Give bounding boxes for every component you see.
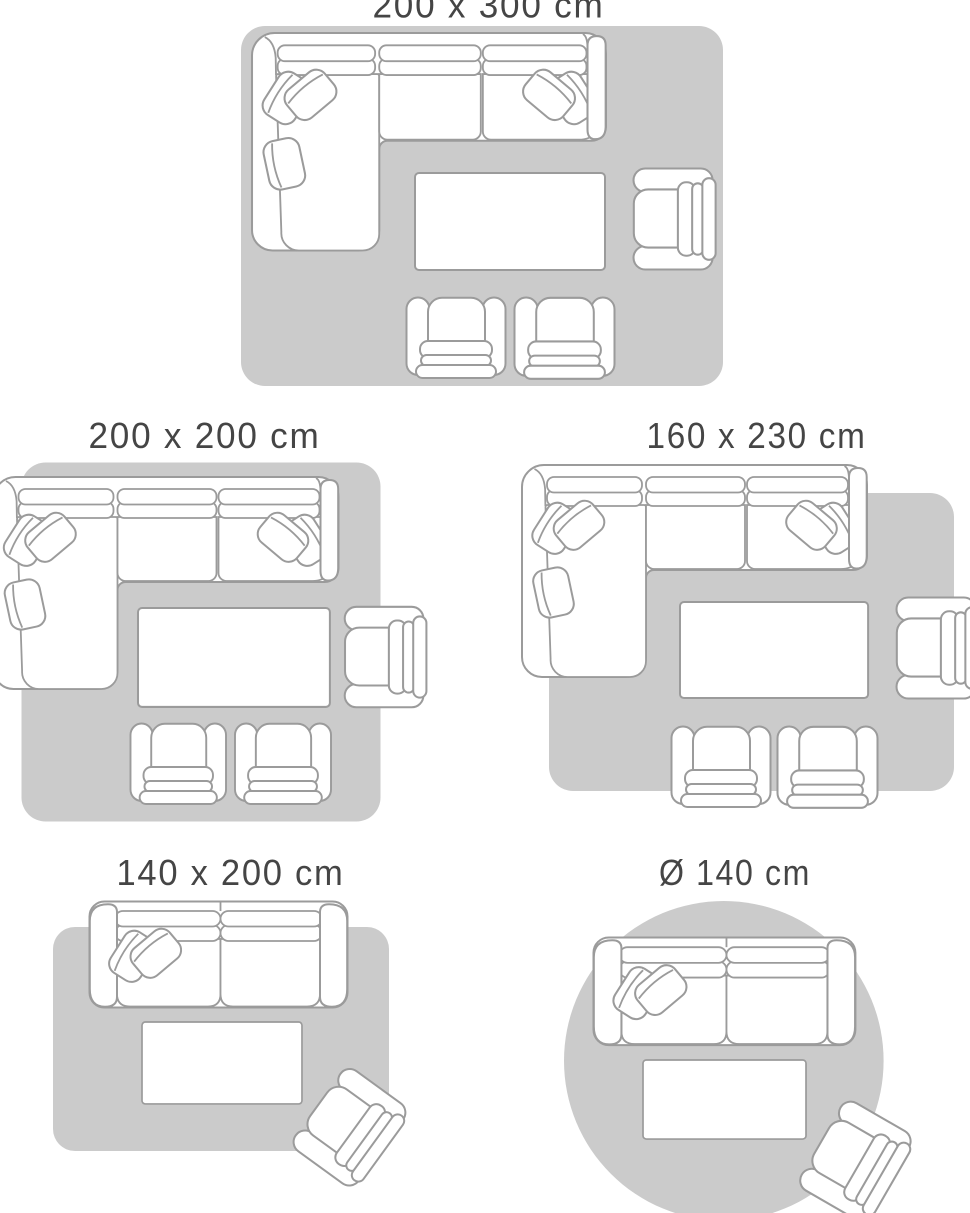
svg-text:160 x 230 cm: 160 x 230 cm — [647, 415, 867, 456]
svg-text:Ø 140 cm: Ø 140 cm — [659, 852, 811, 893]
svg-text:200 x 200 cm: 200 x 200 cm — [89, 415, 321, 456]
svg-text:140 x 200 cm: 140 x 200 cm — [117, 852, 345, 893]
svg-text:200 x 300 cm: 200 x 300 cm — [373, 0, 605, 26]
